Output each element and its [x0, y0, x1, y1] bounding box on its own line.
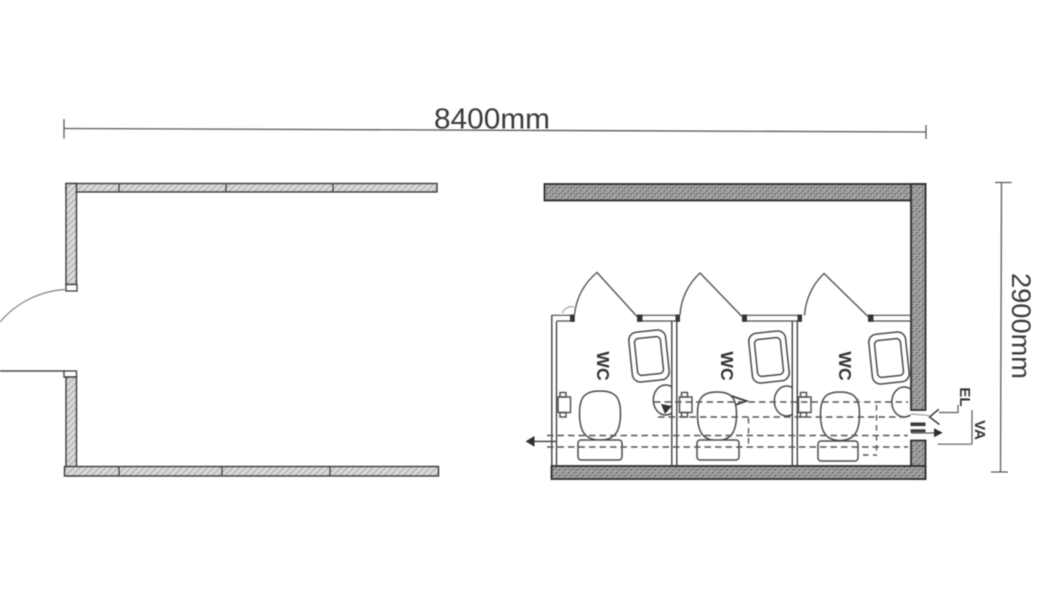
svg-text:WC: WC	[593, 351, 613, 381]
svg-text:WC: WC	[835, 351, 855, 381]
svg-text:8400mm: 8400mm	[434, 104, 550, 136]
svg-text:EL: EL	[956, 387, 973, 406]
svg-text:2900mm: 2900mm	[1006, 273, 1036, 379]
svg-text:VA: VA	[971, 420, 988, 440]
svg-text:WC: WC	[717, 351, 737, 381]
